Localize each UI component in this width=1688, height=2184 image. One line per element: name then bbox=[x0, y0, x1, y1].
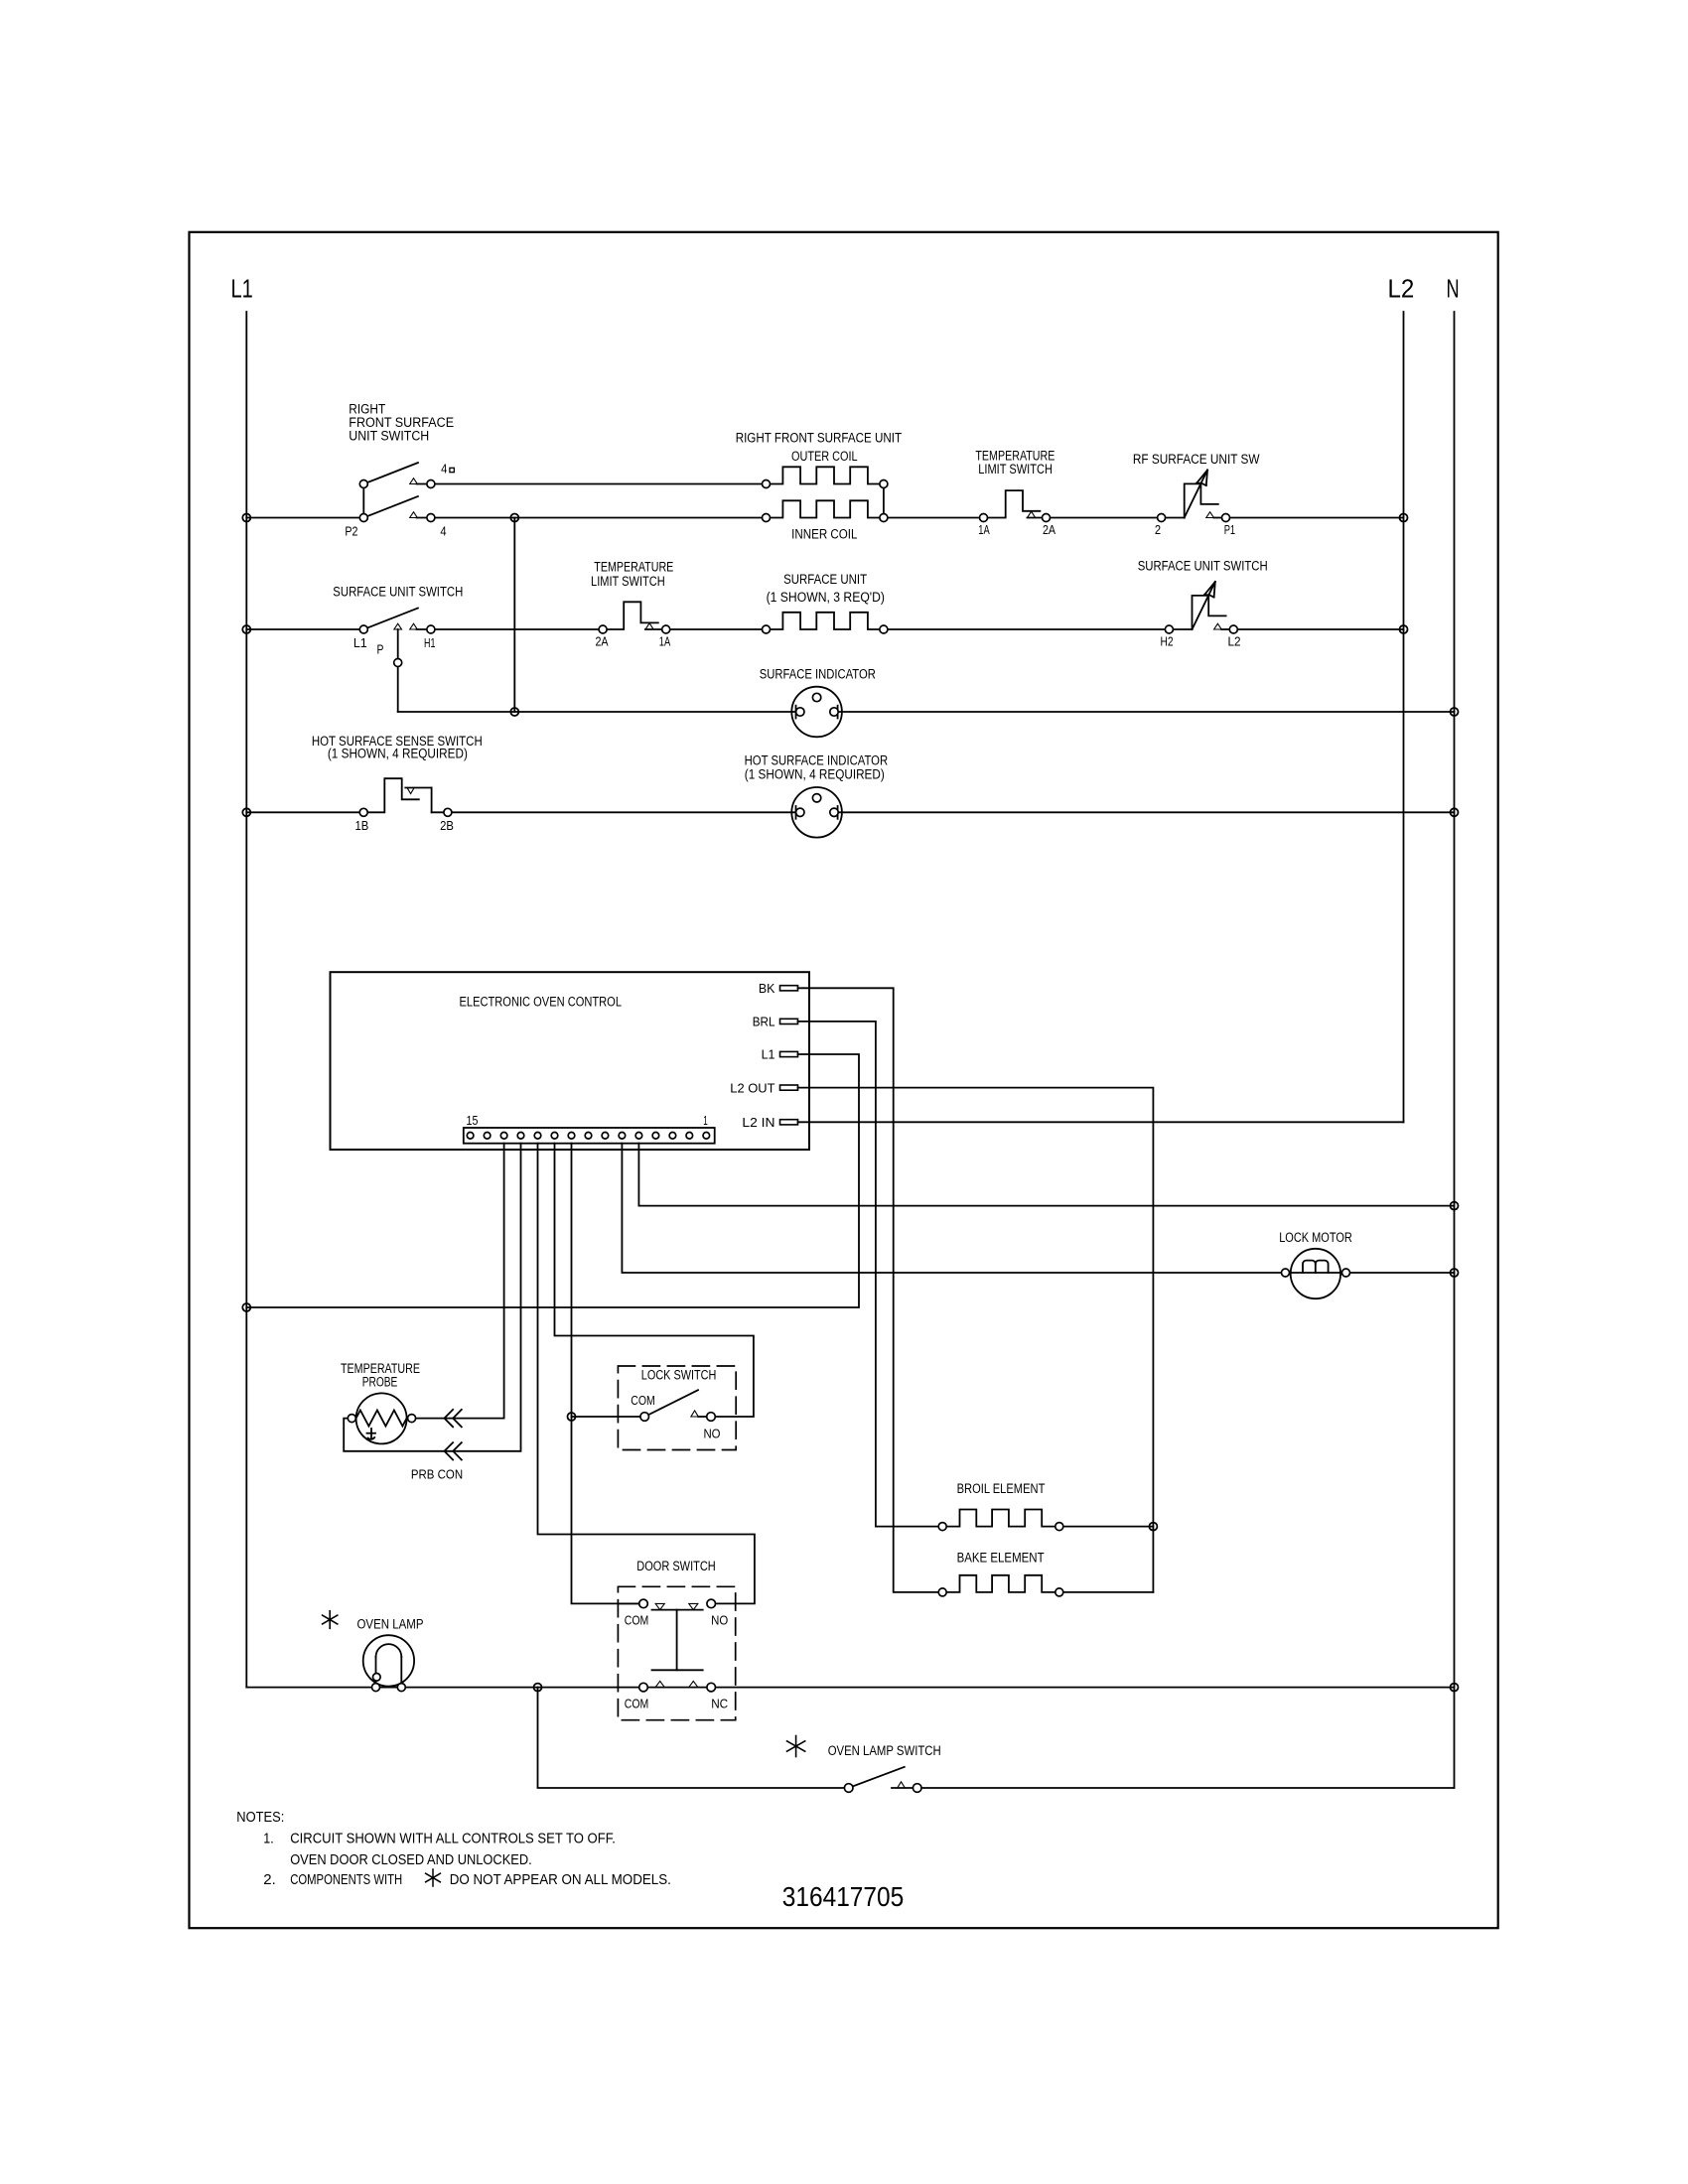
svg-text:1A: 1A bbox=[978, 523, 990, 537]
svg-text:L2 OUT: L2 OUT bbox=[730, 1081, 775, 1095]
svg-text:P: P bbox=[377, 643, 384, 657]
svg-text:L1: L1 bbox=[353, 636, 367, 650]
svg-text:NO: NO bbox=[711, 1614, 728, 1628]
svg-text:2.: 2. bbox=[263, 1872, 276, 1888]
svg-text:LIMIT SWITCH: LIMIT SWITCH bbox=[978, 462, 1053, 477]
svg-text:L2: L2 bbox=[1388, 274, 1415, 304]
svg-text:4: 4 bbox=[441, 463, 447, 477]
svg-text:LIMIT SWITCH: LIMIT SWITCH bbox=[591, 574, 665, 589]
svg-text:L1: L1 bbox=[231, 274, 253, 304]
svg-text:SURFACE INDICATOR: SURFACE INDICATOR bbox=[760, 666, 876, 681]
svg-text:SURFACE UNIT: SURFACE UNIT bbox=[783, 572, 867, 587]
svg-text:ELECTRONIC OVEN CONTROL: ELECTRONIC OVEN CONTROL bbox=[460, 995, 623, 1010]
svg-text:(1 SHOWN, 4 REQUIRED): (1 SHOWN, 4 REQUIRED) bbox=[745, 767, 885, 782]
svg-text:NO: NO bbox=[703, 1428, 720, 1441]
svg-text:COM: COM bbox=[631, 1394, 655, 1408]
svg-text:COM: COM bbox=[625, 1698, 649, 1711]
svg-text:COM: COM bbox=[625, 1614, 649, 1628]
svg-text:H1: H1 bbox=[424, 636, 435, 650]
svg-text:316417705: 316417705 bbox=[782, 1881, 904, 1912]
svg-text:LOCK SWITCH: LOCK SWITCH bbox=[641, 1367, 717, 1382]
svg-text:15: 15 bbox=[467, 1114, 479, 1128]
svg-text:UNIT SWITCH: UNIT SWITCH bbox=[349, 429, 429, 444]
svg-text:CIRCUIT SHOWN WITH ALL CONTROL: CIRCUIT SHOWN WITH ALL CONTROLS SET TO O… bbox=[290, 1832, 616, 1847]
svg-text:2: 2 bbox=[1155, 523, 1161, 537]
svg-text:H2: H2 bbox=[1160, 635, 1173, 649]
svg-text:SURFACE UNIT SWITCH: SURFACE UNIT SWITCH bbox=[333, 584, 463, 599]
svg-text:OVEN LAMP SWITCH: OVEN LAMP SWITCH bbox=[828, 1743, 941, 1758]
svg-text:PRB CON: PRB CON bbox=[411, 1468, 463, 1482]
svg-text:LOCK MOTOR: LOCK MOTOR bbox=[1279, 1230, 1352, 1245]
svg-text:RIGHT FRONT SURFACE UNIT: RIGHT FRONT SURFACE UNIT bbox=[736, 431, 902, 446]
svg-text:1.: 1. bbox=[263, 1832, 273, 1847]
svg-text:(1 SHOWN, 3 REQ'D): (1 SHOWN, 3 REQ'D) bbox=[767, 590, 885, 605]
svg-text:HOT SURFACE INDICATOR: HOT SURFACE INDICATOR bbox=[745, 753, 889, 768]
svg-text:BK: BK bbox=[759, 982, 775, 996]
svg-text:TEMPERATURE: TEMPERATURE bbox=[594, 560, 673, 575]
svg-text:NC: NC bbox=[711, 1698, 728, 1711]
svg-text:(1 SHOWN, 4 REQUIRED): (1 SHOWN, 4 REQUIRED) bbox=[328, 747, 468, 761]
svg-text:DO NOT APPEAR ON ALL MODELS.: DO NOT APPEAR ON ALL MODELS. bbox=[450, 1872, 671, 1888]
svg-text:L2: L2 bbox=[1227, 635, 1240, 649]
svg-text:P1: P1 bbox=[1224, 523, 1235, 537]
svg-text:INNER COIL: INNER COIL bbox=[791, 527, 858, 542]
svg-text:1: 1 bbox=[703, 1114, 708, 1128]
svg-text:OUTER COIL: OUTER COIL bbox=[791, 449, 858, 464]
svg-text:OVEN DOOR CLOSED AND UNLOCKED.: OVEN DOOR CLOSED AND UNLOCKED. bbox=[290, 1852, 532, 1868]
svg-text:N: N bbox=[1447, 274, 1460, 304]
svg-text:1A: 1A bbox=[659, 635, 671, 649]
svg-text:DOOR SWITCH: DOOR SWITCH bbox=[636, 1559, 716, 1573]
svg-text:2A: 2A bbox=[595, 635, 609, 649]
svg-text:OVEN LAMP: OVEN LAMP bbox=[357, 1617, 424, 1632]
svg-text:COMPONENTS WITH: COMPONENTS WITH bbox=[290, 1872, 402, 1888]
svg-text:2A: 2A bbox=[1043, 523, 1056, 537]
svg-text:4: 4 bbox=[440, 525, 446, 539]
svg-text:SURFACE UNIT SWITCH: SURFACE UNIT SWITCH bbox=[1138, 559, 1268, 574]
svg-text:NOTES:: NOTES: bbox=[236, 1810, 284, 1826]
svg-text:P2: P2 bbox=[345, 525, 357, 539]
svg-text:BRL: BRL bbox=[753, 1016, 775, 1029]
svg-text:L1: L1 bbox=[762, 1048, 775, 1062]
svg-text:L2 IN: L2 IN bbox=[742, 1116, 774, 1130]
svg-text:1B: 1B bbox=[355, 819, 369, 833]
svg-text:2B: 2B bbox=[440, 819, 454, 833]
svg-text:PROBE: PROBE bbox=[362, 1375, 398, 1390]
svg-text:BROIL ELEMENT: BROIL ELEMENT bbox=[957, 1481, 1046, 1496]
svg-text:RF SURFACE UNIT SW: RF SURFACE UNIT SW bbox=[1133, 452, 1260, 467]
svg-text:BAKE ELEMENT: BAKE ELEMENT bbox=[957, 1551, 1045, 1566]
